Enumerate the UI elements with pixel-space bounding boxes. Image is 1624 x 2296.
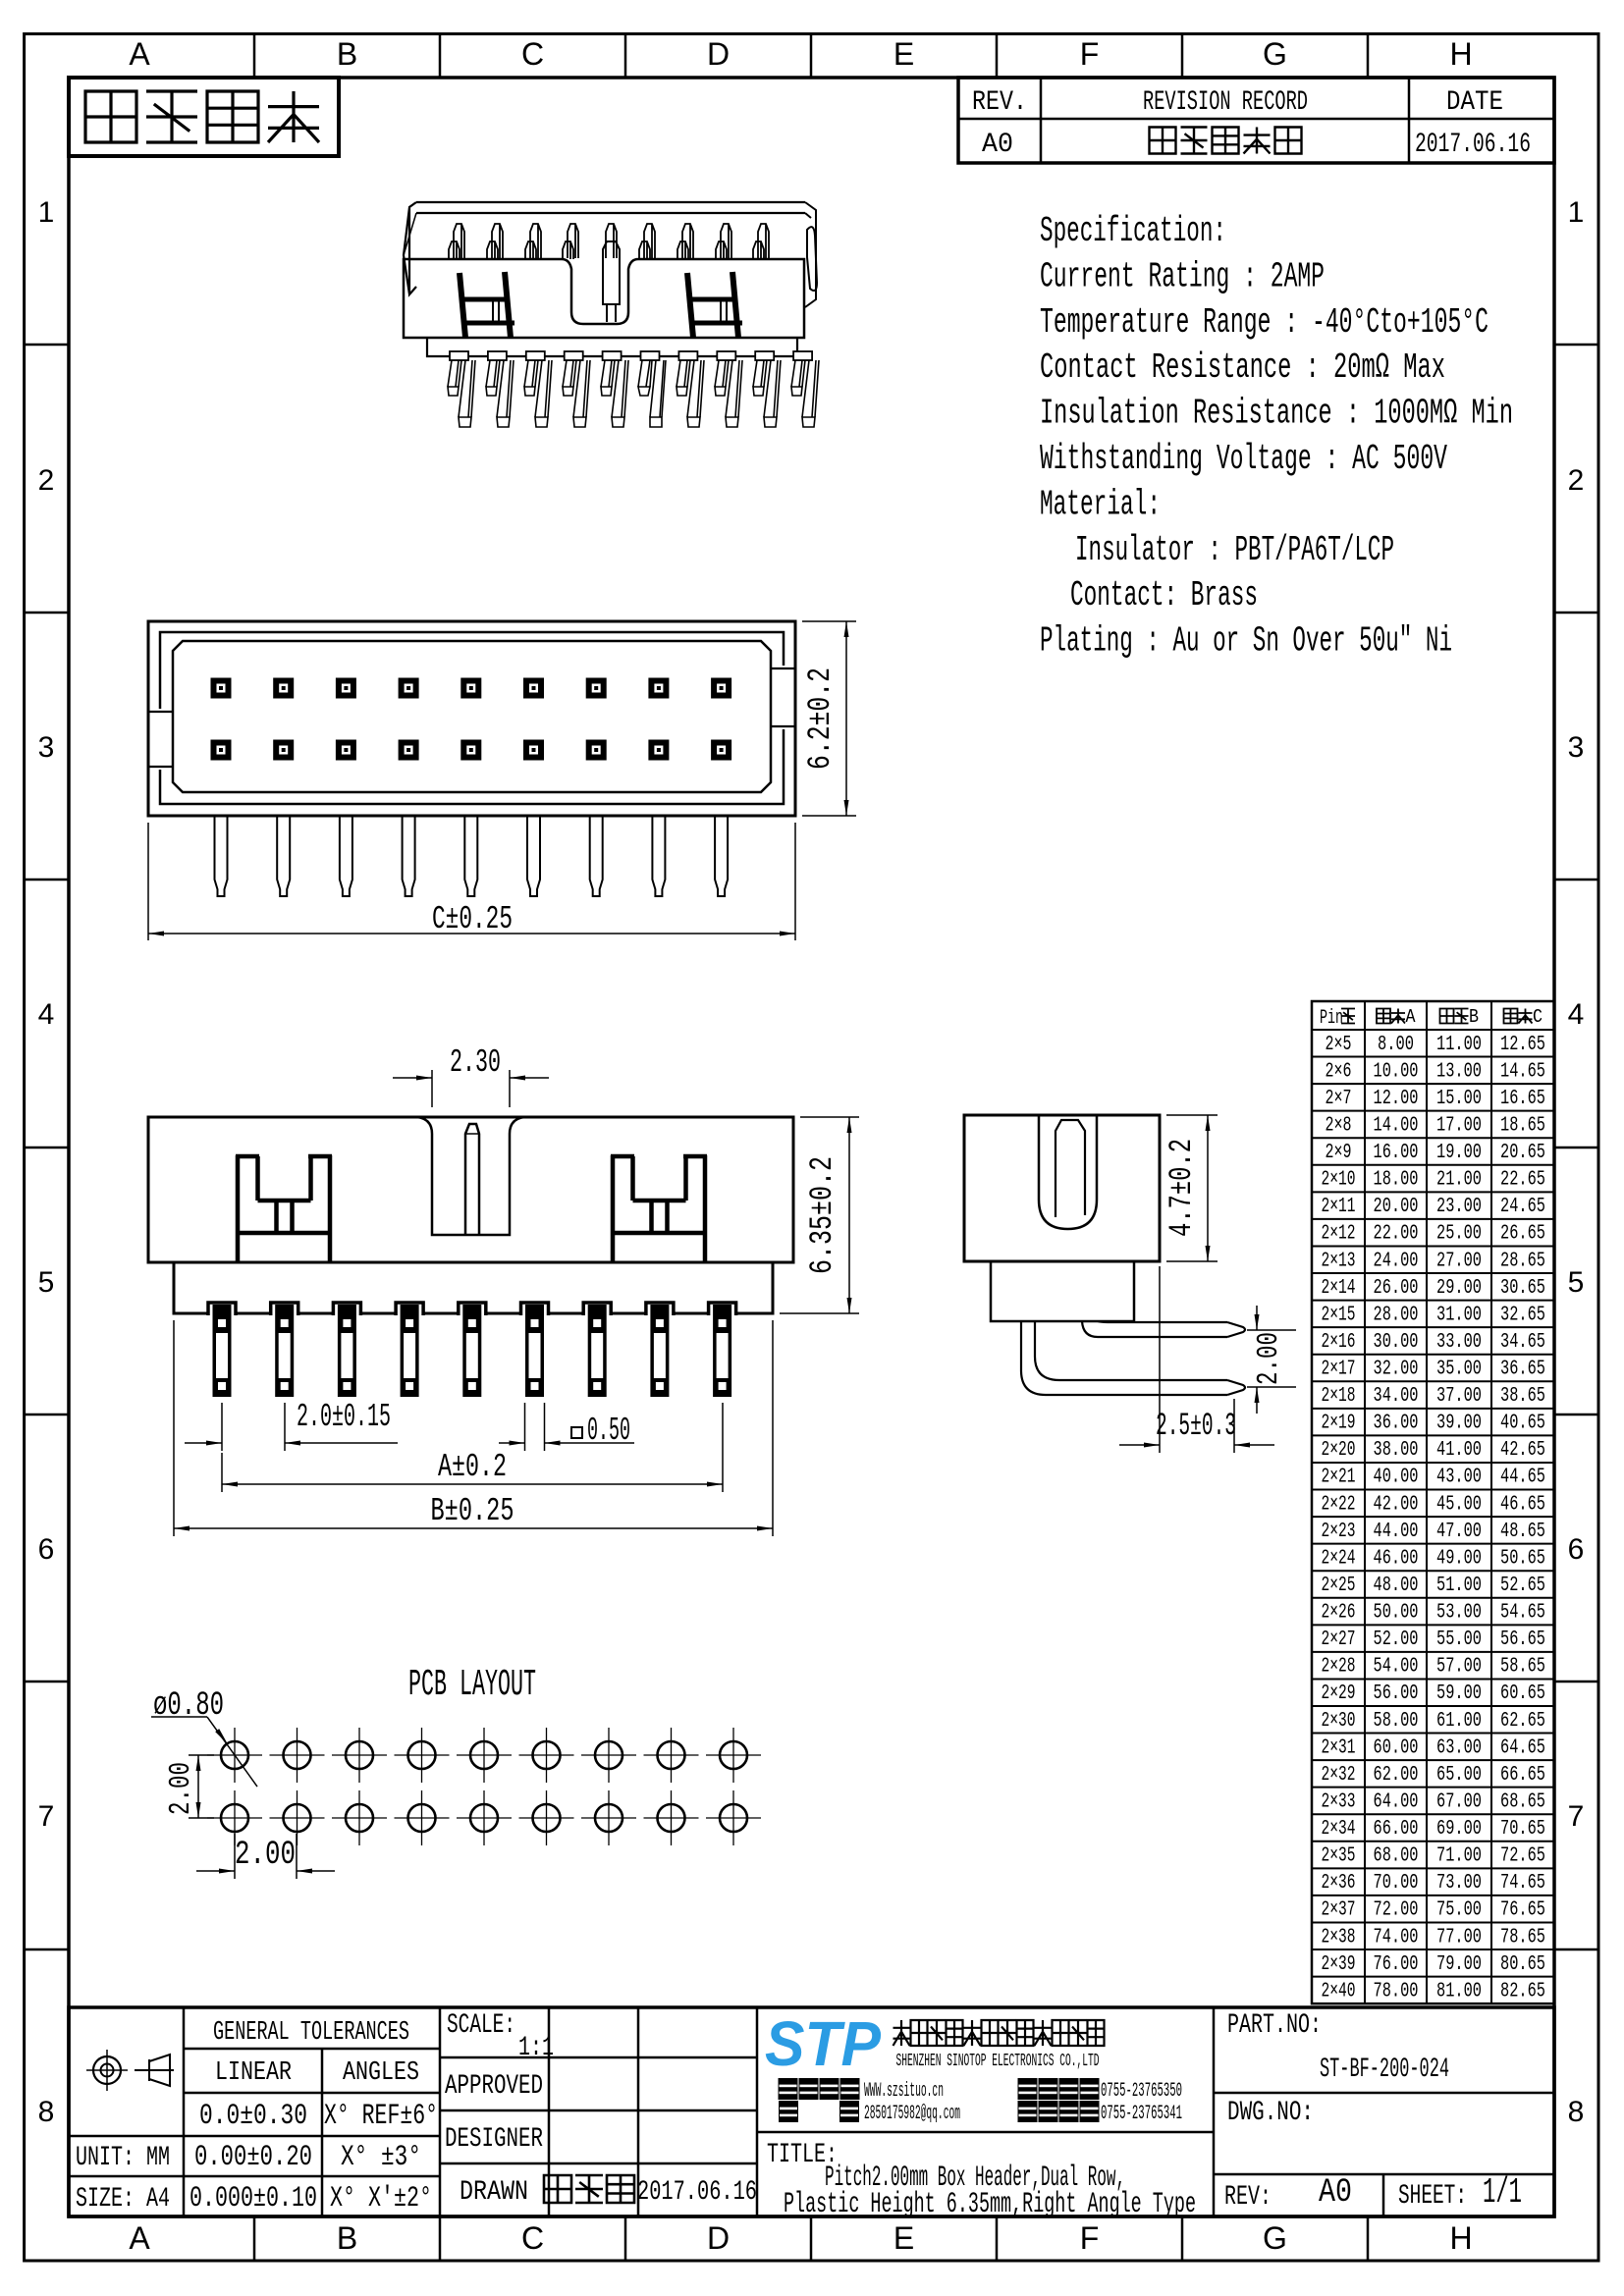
- svg-text:3: 3: [38, 731, 55, 764]
- svg-text:30.00: 30.00: [1374, 1331, 1419, 1354]
- svg-text:Specification:: Specification:: [1040, 211, 1226, 251]
- svg-text:14.00: 14.00: [1374, 1114, 1419, 1137]
- svg-text:2017.06.16: 2017.06.16: [1415, 130, 1531, 160]
- svg-text:F: F: [1080, 2220, 1100, 2256]
- svg-text:2×10: 2×10: [1322, 1169, 1356, 1192]
- svg-text:2850175982@qq.com: 2850175982@qq.com: [864, 2103, 960, 2125]
- svg-text:53.00: 53.00: [1436, 1602, 1482, 1625]
- svg-text:B: B: [1469, 1006, 1479, 1028]
- svg-text:24.00: 24.00: [1374, 1250, 1419, 1272]
- svg-text:D: D: [707, 2220, 730, 2256]
- svg-text:1:1: 1:1: [518, 2033, 554, 2063]
- svg-text:54.65: 54.65: [1500, 1602, 1545, 1625]
- svg-text:B: B: [337, 36, 357, 72]
- svg-text:70.65: 70.65: [1500, 1818, 1545, 1841]
- svg-text:2×19: 2×19: [1322, 1413, 1356, 1435]
- svg-text:2×38: 2×38: [1322, 1926, 1356, 1949]
- svg-text:26.00: 26.00: [1374, 1277, 1419, 1300]
- svg-text:1: 1: [38, 196, 55, 229]
- svg-text:6.2±0.2: 6.2±0.2: [802, 667, 839, 770]
- svg-text:72.65: 72.65: [1500, 1845, 1545, 1868]
- svg-text:2×15: 2×15: [1322, 1304, 1356, 1326]
- svg-text:39.00: 39.00: [1436, 1413, 1482, 1435]
- svg-text:PART.NO:: PART.NO:: [1227, 2010, 1322, 2041]
- svg-text:42.65: 42.65: [1500, 1439, 1545, 1462]
- svg-text:2.0±0.15: 2.0±0.15: [297, 1399, 391, 1435]
- svg-text:64.65: 64.65: [1500, 1736, 1545, 1759]
- svg-text:G: G: [1263, 36, 1287, 72]
- svg-text:2×16: 2×16: [1322, 1331, 1356, 1354]
- svg-text:80.65: 80.65: [1500, 1953, 1545, 1976]
- svg-text:51.00: 51.00: [1436, 1575, 1482, 1597]
- svg-text:2×33: 2×33: [1322, 1790, 1356, 1813]
- svg-text:2.00: 2.00: [235, 1837, 296, 1874]
- svg-text:71.00: 71.00: [1436, 1845, 1482, 1868]
- svg-text:60.65: 60.65: [1500, 1682, 1545, 1705]
- svg-text:2×8: 2×8: [1326, 1114, 1352, 1137]
- svg-text:62.00: 62.00: [1374, 1764, 1419, 1787]
- svg-text:A: A: [1406, 1006, 1417, 1028]
- svg-text:0.00±0.20: 0.00±0.20: [194, 2141, 312, 2174]
- svg-text:58.00: 58.00: [1374, 1710, 1419, 1733]
- svg-text:37.00: 37.00: [1436, 1385, 1482, 1408]
- svg-text:23.00: 23.00: [1436, 1196, 1482, 1218]
- svg-text:44.00: 44.00: [1374, 1521, 1419, 1543]
- svg-text:A: A: [129, 2220, 150, 2256]
- svg-text:A0: A0: [1319, 2174, 1352, 2212]
- svg-text:73.00: 73.00: [1436, 1872, 1482, 1895]
- svg-text:2.30: 2.30: [450, 1044, 501, 1081]
- svg-text:11.00: 11.00: [1436, 1034, 1482, 1056]
- svg-text:22.00: 22.00: [1374, 1223, 1419, 1246]
- svg-text:REVISION RECORD: REVISION RECORD: [1143, 87, 1308, 118]
- svg-text:2×17: 2×17: [1322, 1359, 1356, 1381]
- svg-text:2×35: 2×35: [1322, 1845, 1356, 1868]
- svg-text:29.00: 29.00: [1436, 1277, 1482, 1300]
- svg-text:61.00: 61.00: [1436, 1710, 1482, 1733]
- svg-text:46.65: 46.65: [1500, 1493, 1545, 1516]
- svg-text:2.00: 2.00: [1252, 1332, 1286, 1385]
- svg-text:41.00: 41.00: [1436, 1439, 1482, 1462]
- svg-text:2×36: 2×36: [1322, 1872, 1356, 1895]
- svg-text:35.00: 35.00: [1436, 1359, 1482, 1381]
- svg-text:SHENZHEN SINOTOP ELECTRONICS C: SHENZHEN SINOTOP ELECTRONICS CO.,LTD: [896, 2052, 1100, 2071]
- svg-text:2×21: 2×21: [1322, 1467, 1356, 1489]
- svg-text:32.00: 32.00: [1374, 1359, 1419, 1381]
- svg-text:Plating : Au or Sn Over 50u" N: Plating : Au or Sn Over 50u" Ni: [1040, 621, 1452, 662]
- svg-text:78.65: 78.65: [1500, 1926, 1545, 1949]
- svg-text:60.00: 60.00: [1374, 1736, 1419, 1759]
- svg-text:31.00: 31.00: [1436, 1304, 1482, 1326]
- svg-text:ST-BF-200-024: ST-BF-200-024: [1320, 2055, 1449, 2085]
- svg-text:2×25: 2×25: [1322, 1575, 1356, 1597]
- svg-text:45.00: 45.00: [1436, 1493, 1482, 1516]
- svg-text:66.65: 66.65: [1500, 1764, 1545, 1787]
- svg-text:6: 6: [1568, 1533, 1585, 1566]
- svg-text:H: H: [1449, 2220, 1472, 2256]
- svg-text:78.00: 78.00: [1374, 1980, 1419, 2002]
- svg-text:26.65: 26.65: [1500, 1223, 1545, 1246]
- svg-text:ANGLES: ANGLES: [343, 2058, 419, 2088]
- svg-text:5: 5: [38, 1266, 55, 1299]
- svg-text:68.00: 68.00: [1374, 1845, 1419, 1868]
- svg-text:Contact Resistance : 20mΩ Max: Contact Resistance : 20mΩ Max: [1040, 347, 1445, 388]
- svg-text:2×11: 2×11: [1322, 1196, 1356, 1218]
- svg-text:40.65: 40.65: [1500, 1413, 1545, 1435]
- svg-text:16.65: 16.65: [1500, 1088, 1545, 1110]
- svg-text:12.65: 12.65: [1500, 1034, 1545, 1056]
- svg-text:76.65: 76.65: [1500, 1899, 1545, 1922]
- svg-text:REV.: REV.: [972, 87, 1027, 118]
- svg-text:B±0.25: B±0.25: [431, 1493, 514, 1529]
- svg-text:19.00: 19.00: [1436, 1142, 1482, 1164]
- svg-text:74.65: 74.65: [1500, 1872, 1545, 1895]
- svg-text:2×20: 2×20: [1322, 1439, 1356, 1462]
- svg-text:74.00: 74.00: [1374, 1926, 1419, 1949]
- svg-text:28.00: 28.00: [1374, 1304, 1419, 1326]
- svg-text:C: C: [521, 36, 544, 72]
- svg-text:DATE: DATE: [1446, 87, 1503, 118]
- svg-text:Contact: Brass: Contact: Brass: [1070, 575, 1258, 615]
- svg-text:SCALE:: SCALE:: [447, 2010, 515, 2041]
- svg-text:52.65: 52.65: [1500, 1575, 1545, 1597]
- svg-text:49.00: 49.00: [1436, 1547, 1482, 1570]
- svg-text:64.00: 64.00: [1374, 1790, 1419, 1813]
- svg-text:22.65: 22.65: [1500, 1169, 1545, 1192]
- svg-text:G: G: [1263, 2220, 1287, 2256]
- svg-text:8.00: 8.00: [1378, 1034, 1414, 1056]
- svg-text:18.00: 18.00: [1374, 1169, 1419, 1192]
- svg-text:X° ±3°: X° ±3°: [341, 2141, 421, 2174]
- svg-text:C±0.25: C±0.25: [432, 901, 513, 937]
- svg-text:21.00: 21.00: [1436, 1169, 1482, 1192]
- svg-text:Pin: Pin: [1320, 1007, 1343, 1030]
- svg-text:4: 4: [1568, 998, 1585, 1031]
- svg-text:2×22: 2×22: [1322, 1493, 1356, 1516]
- svg-text:B: B: [337, 2220, 357, 2256]
- svg-text:LINEAR: LINEAR: [215, 2058, 292, 2088]
- svg-text:0755-23765350: 0755-23765350: [1101, 2080, 1182, 2103]
- svg-text:2×9: 2×9: [1326, 1142, 1352, 1164]
- svg-text:D: D: [707, 36, 730, 72]
- svg-text:2×18: 2×18: [1322, 1385, 1356, 1408]
- svg-text:16.00: 16.00: [1374, 1142, 1419, 1164]
- svg-text:48.65: 48.65: [1500, 1521, 1545, 1543]
- svg-text:DESIGNER: DESIGNER: [445, 2124, 543, 2155]
- svg-text:75.00: 75.00: [1436, 1899, 1482, 1922]
- svg-text:5: 5: [1568, 1266, 1585, 1299]
- svg-text:44.65: 44.65: [1500, 1467, 1545, 1489]
- svg-text:Temperature Range : -40°Cto+10: Temperature Range : -40°Cto+105°C: [1040, 302, 1489, 343]
- svg-text:2: 2: [38, 464, 55, 497]
- svg-text:2×39: 2×39: [1322, 1953, 1356, 1976]
- svg-text:2×31: 2×31: [1322, 1736, 1356, 1759]
- svg-text:ø0.80: ø0.80: [153, 1687, 224, 1725]
- svg-text:2.00: 2.00: [164, 1762, 198, 1815]
- svg-text:47.00: 47.00: [1436, 1521, 1482, 1543]
- svg-text:7: 7: [1568, 1800, 1585, 1833]
- svg-text:2.5±0.3: 2.5±0.3: [1156, 1408, 1236, 1444]
- svg-text:2×5: 2×5: [1326, 1034, 1352, 1056]
- svg-text:2×24: 2×24: [1322, 1547, 1356, 1570]
- svg-text:4.7±0.2: 4.7±0.2: [1164, 1139, 1200, 1237]
- svg-text:0755-23765341: 0755-23765341: [1101, 2103, 1182, 2125]
- svg-text:77.00: 77.00: [1436, 1926, 1482, 1949]
- svg-text:2×40: 2×40: [1322, 1980, 1356, 2002]
- svg-text:36.00: 36.00: [1374, 1413, 1419, 1435]
- svg-text:Withstanding Voltage : AC 500V: Withstanding Voltage : AC 500V: [1040, 439, 1447, 479]
- svg-text:42.00: 42.00: [1374, 1493, 1419, 1516]
- svg-text:2×27: 2×27: [1322, 1629, 1356, 1651]
- svg-text:18.65: 18.65: [1500, 1114, 1545, 1137]
- svg-text:76.00: 76.00: [1374, 1953, 1419, 1976]
- svg-text:F: F: [1080, 36, 1100, 72]
- svg-text:2×30: 2×30: [1322, 1710, 1356, 1733]
- svg-text:E: E: [893, 2220, 914, 2256]
- svg-text:8: 8: [38, 2096, 55, 2128]
- svg-text:H: H: [1449, 36, 1472, 72]
- svg-text:72.00: 72.00: [1374, 1899, 1419, 1922]
- svg-text:50.00: 50.00: [1374, 1602, 1419, 1625]
- svg-text:DRAWN: DRAWN: [460, 2177, 528, 2208]
- svg-text:A±0.2: A±0.2: [438, 1449, 507, 1485]
- svg-text:Insulation Resistance : 1000MΩ: Insulation Resistance : 1000MΩ Min: [1040, 394, 1513, 434]
- svg-text:57.00: 57.00: [1436, 1656, 1482, 1679]
- svg-text:Insulator : PBT/PA6T/LCP: Insulator : PBT/PA6T/LCP: [1075, 530, 1394, 570]
- svg-text:10.00: 10.00: [1374, 1060, 1419, 1083]
- svg-text:81.00: 81.00: [1436, 1980, 1482, 2002]
- svg-text:UNIT: MM: UNIT: MM: [76, 2143, 170, 2173]
- svg-text:2×26: 2×26: [1322, 1602, 1356, 1625]
- svg-text:40.00: 40.00: [1374, 1467, 1419, 1489]
- svg-text:REV:: REV:: [1224, 2182, 1272, 2213]
- svg-text:2×23: 2×23: [1322, 1521, 1356, 1543]
- svg-text:SIZE: A4: SIZE: A4: [76, 2184, 170, 2215]
- svg-text:38.65: 38.65: [1500, 1385, 1545, 1408]
- svg-text:52.00: 52.00: [1374, 1629, 1419, 1651]
- svg-text:17.00: 17.00: [1436, 1114, 1482, 1137]
- svg-text:1: 1: [1568, 196, 1585, 229]
- svg-text:56.00: 56.00: [1374, 1682, 1419, 1705]
- svg-text:28.65: 28.65: [1500, 1250, 1545, 1272]
- svg-text:55.00: 55.00: [1436, 1629, 1482, 1651]
- svg-text:WWW.szsituo.cn: WWW.szsituo.cn: [864, 2080, 944, 2103]
- svg-text:2: 2: [1568, 464, 1585, 497]
- svg-text:0.000±0.10: 0.000±0.10: [189, 2182, 317, 2216]
- svg-text:0.50: 0.50: [587, 1413, 630, 1449]
- svg-text:6: 6: [38, 1533, 55, 1566]
- svg-text:STP: STP: [765, 2008, 881, 2079]
- svg-text:2×13: 2×13: [1322, 1250, 1356, 1272]
- svg-text:13.00: 13.00: [1436, 1060, 1482, 1083]
- svg-text:SHEET:: SHEET:: [1398, 2181, 1467, 2212]
- svg-text:X° REF±6°: X° REF±6°: [324, 2100, 438, 2133]
- svg-text:3: 3: [1568, 731, 1585, 764]
- svg-text:X° X'±2°: X° X'±2°: [330, 2182, 432, 2216]
- svg-text:54.00: 54.00: [1374, 1656, 1419, 1679]
- svg-text:50.65: 50.65: [1500, 1547, 1545, 1570]
- svg-text:PCB LAYOUT: PCB LAYOUT: [408, 1664, 536, 1706]
- svg-text:30.65: 30.65: [1500, 1277, 1545, 1300]
- svg-text:0.0±0.30: 0.0±0.30: [199, 2100, 307, 2133]
- svg-text:7: 7: [38, 1800, 55, 1833]
- svg-text:20.65: 20.65: [1500, 1142, 1545, 1164]
- svg-text:8: 8: [1568, 2096, 1585, 2128]
- svg-text:2×28: 2×28: [1322, 1656, 1356, 1679]
- svg-text:62.65: 62.65: [1500, 1710, 1545, 1733]
- svg-text:65.00: 65.00: [1436, 1764, 1482, 1787]
- svg-text:66.00: 66.00: [1374, 1818, 1419, 1841]
- svg-text:C: C: [1533, 1006, 1543, 1028]
- svg-text:34.65: 34.65: [1500, 1331, 1545, 1354]
- svg-text:6.35±0.2: 6.35±0.2: [804, 1156, 840, 1274]
- svg-text:Current Rating : 2AMP: Current Rating : 2AMP: [1040, 256, 1325, 296]
- svg-text:DWG.NO:: DWG.NO:: [1227, 2098, 1314, 2128]
- svg-text:25.00: 25.00: [1436, 1223, 1482, 1246]
- svg-text:15.00: 15.00: [1436, 1088, 1482, 1110]
- svg-text:2×37: 2×37: [1322, 1899, 1356, 1922]
- svg-text:33.00: 33.00: [1436, 1331, 1482, 1354]
- svg-text:67.00: 67.00: [1436, 1790, 1482, 1813]
- svg-text:2×14: 2×14: [1322, 1277, 1356, 1300]
- svg-text:2×29: 2×29: [1322, 1682, 1356, 1705]
- svg-text:Plastic Height 6.35mm,Right An: Plastic Height 6.35mm,Right Angle Type: [784, 2188, 1196, 2221]
- svg-text:2×34: 2×34: [1322, 1818, 1356, 1841]
- svg-text:70.00: 70.00: [1374, 1872, 1419, 1895]
- svg-text:59.00: 59.00: [1436, 1682, 1482, 1705]
- svg-text:GENERAL TOLERANCES: GENERAL TOLERANCES: [213, 2018, 409, 2048]
- svg-text:68.65: 68.65: [1500, 1790, 1545, 1813]
- svg-text:1/1: 1/1: [1483, 2172, 1522, 2213]
- svg-text:14.65: 14.65: [1500, 1060, 1545, 1083]
- svg-text:58.65: 58.65: [1500, 1656, 1545, 1679]
- svg-text:2017.06.16: 2017.06.16: [637, 2177, 757, 2208]
- svg-text:Material:: Material:: [1040, 484, 1161, 524]
- svg-text:2×12: 2×12: [1322, 1223, 1356, 1246]
- svg-text:12.00: 12.00: [1374, 1088, 1419, 1110]
- svg-text:27.00: 27.00: [1436, 1250, 1482, 1272]
- svg-text:2×32: 2×32: [1322, 1764, 1356, 1787]
- svg-text:A: A: [129, 36, 150, 72]
- svg-text:34.00: 34.00: [1374, 1385, 1419, 1408]
- svg-text:69.00: 69.00: [1436, 1818, 1482, 1841]
- svg-text:38.00: 38.00: [1374, 1439, 1419, 1462]
- svg-text:2×7: 2×7: [1326, 1088, 1352, 1110]
- svg-text:24.65: 24.65: [1500, 1196, 1545, 1218]
- svg-text:A0: A0: [982, 130, 1013, 160]
- svg-text:C: C: [521, 2220, 544, 2256]
- svg-text:56.65: 56.65: [1500, 1629, 1545, 1651]
- svg-text:63.00: 63.00: [1436, 1736, 1482, 1759]
- svg-text:2×6: 2×6: [1326, 1060, 1352, 1083]
- svg-text:APPROVED: APPROVED: [445, 2071, 543, 2102]
- svg-text:36.65: 36.65: [1500, 1359, 1545, 1381]
- svg-text:48.00: 48.00: [1374, 1575, 1419, 1597]
- svg-text:82.65: 82.65: [1500, 1980, 1545, 2002]
- svg-text:4: 4: [38, 998, 55, 1031]
- svg-text:20.00: 20.00: [1374, 1196, 1419, 1218]
- svg-text:E: E: [893, 36, 914, 72]
- svg-text:32.65: 32.65: [1500, 1304, 1545, 1326]
- svg-text:79.00: 79.00: [1436, 1953, 1482, 1976]
- svg-text:43.00: 43.00: [1436, 1467, 1482, 1489]
- svg-text:46.00: 46.00: [1374, 1547, 1419, 1570]
